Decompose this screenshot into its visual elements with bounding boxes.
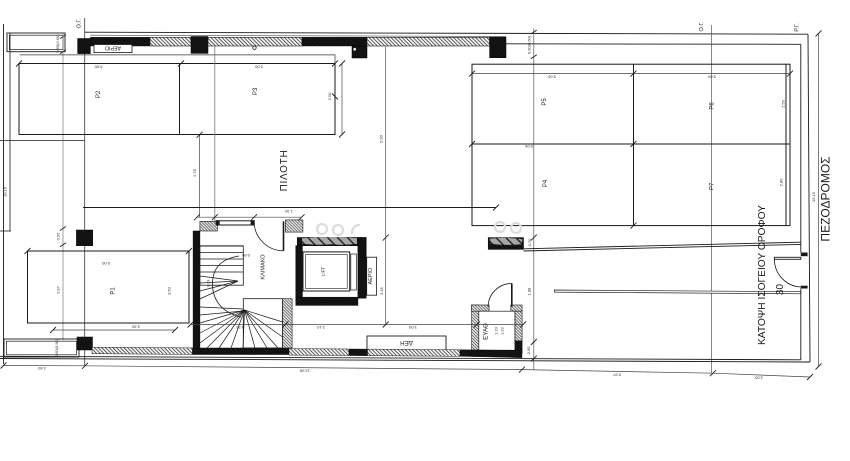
svg-text:5.00: 5.00	[101, 261, 110, 266]
svg-text:2.50: 2.50	[37, 366, 46, 371]
svg-text:0.60(0.90): 0.60(0.90)	[54, 338, 59, 357]
svg-text:ΔΕΗ: ΔΕΗ	[400, 339, 413, 346]
svg-text:5.00: 5.00	[707, 75, 716, 80]
svg-text:Ο.Γ.: Ο.Γ.	[699, 21, 705, 31]
svg-text:5.05: 5.05	[524, 144, 533, 149]
svg-text:P7: P7	[710, 182, 716, 190]
svg-text:3.00: 3.00	[754, 375, 763, 380]
svg-text:5.00: 5.00	[547, 75, 556, 80]
svg-text:1.22: 1.22	[500, 326, 505, 335]
svg-text:0.60(0.90): 0.60(0.90)	[55, 34, 60, 53]
svg-text:ΕΥΑΘ: ΕΥΑΘ	[483, 323, 490, 340]
svg-text:P1: P1	[111, 287, 117, 295]
svg-text:2.78: 2.78	[192, 168, 197, 177]
svg-text:P4: P4	[543, 179, 549, 187]
svg-text:10.16: 10.16	[3, 186, 8, 197]
svg-text:ΠΙΛΟΤΗ: ΠΙΛΟΤΗ	[279, 150, 290, 192]
svg-text:2.50: 2.50	[781, 99, 786, 108]
svg-text:2.50: 2.50	[327, 92, 332, 101]
svg-text:3.30: 3.30	[131, 325, 140, 330]
svg-text:ΠΕΖΟΔΡΟΜΟΣ: ΠΕΖΟΔΡΟΜΟΣ	[819, 156, 833, 241]
svg-text:2.10: 2.10	[316, 325, 325, 330]
svg-text:1.20: 1.20	[494, 326, 499, 335]
svg-text:P3: P3	[253, 87, 259, 95]
svg-text:P5: P5	[542, 98, 548, 106]
svg-text:0.90: 0.90	[241, 253, 250, 258]
svg-text:0.90(0.60): 0.90(0.60)	[527, 35, 532, 54]
svg-text:0.90: 0.90	[526, 346, 531, 355]
svg-text:3.30: 3.30	[235, 325, 244, 330]
svg-text:P6: P6	[710, 102, 716, 110]
svg-text:1.88: 1.88	[527, 287, 532, 296]
svg-text:P2: P2	[96, 90, 102, 98]
svg-text:ΚΑΤΟΨΗ ΙΣΟΓΕΙΟΥ ΟΡΟΦΟΥ: ΚΑΤΟΨΗ ΙΣΟΓΕΙΟΥ ΟΡΟΦΟΥ	[757, 205, 768, 345]
svg-text:ΚΛΙΜΑΚΟ: ΚΛΙΜΑΚΟ	[261, 254, 267, 280]
svg-text:5.97: 5.97	[612, 373, 621, 378]
svg-text:3.45: 3.45	[379, 286, 384, 295]
svg-text:ΑΕΡΙΟ: ΑΕΡΙΟ	[105, 45, 121, 51]
svg-text:Ο.Γ.: Ο.Γ.	[77, 18, 83, 28]
svg-text:2.80: 2.80	[779, 178, 784, 187]
svg-text:5.00: 5.00	[254, 65, 263, 70]
svg-text:30: 30	[775, 284, 786, 296]
svg-text:LIFT: LIFT	[321, 267, 326, 277]
svg-text:3.05: 3.05	[408, 325, 417, 330]
svg-text:0.55: 0.55	[56, 232, 61, 241]
svg-text:2.87: 2.87	[56, 285, 61, 294]
svg-text:13.98: 13.98	[299, 368, 310, 373]
svg-text:16.15: 16.15	[811, 191, 816, 202]
svg-text:Ρ.Γ.: Ρ.Γ.	[795, 23, 801, 32]
svg-text:1.30: 1.30	[284, 209, 293, 214]
svg-text:5.90: 5.90	[379, 134, 384, 143]
svg-text:5.00: 5.00	[94, 65, 103, 70]
svg-text:3.50: 3.50	[167, 286, 172, 295]
svg-text:ΑΕΡΙΟ: ΑΕΡΙΟ	[368, 268, 374, 284]
svg-text:3.73: 3.73	[206, 279, 211, 288]
svg-text:0.70: 0.70	[527, 238, 532, 247]
